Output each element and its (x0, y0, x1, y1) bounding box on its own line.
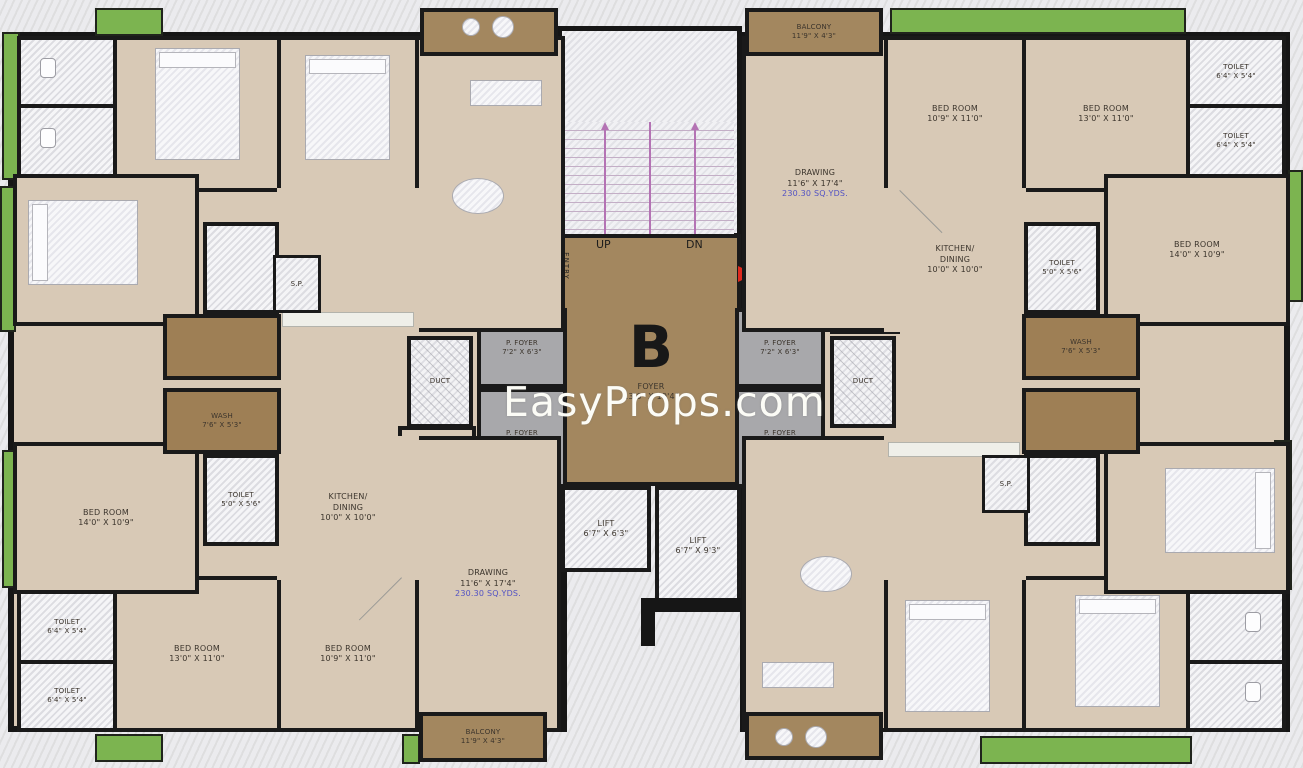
toilet-02c (1024, 454, 1100, 546)
balcony-04 (420, 8, 558, 56)
bedroom-03b: BED ROOM 13'0" X 11'0" (113, 576, 281, 732)
room-label: TOILET (1049, 259, 1075, 268)
room-label: TOILET (54, 687, 80, 696)
room-label: BED ROOM (83, 508, 129, 518)
wash-01: WASH 7'6" X 5'3" (1022, 314, 1140, 380)
room-dims: 11'6" X 17'4" (460, 579, 515, 589)
room-label: TOILET (228, 491, 254, 500)
room-dims: 10'0" X 10'0" (320, 513, 375, 523)
stair-dn-arrow-icon (691, 122, 699, 130)
kitchen-counter (282, 312, 414, 327)
toilet-04c (203, 222, 279, 314)
pillow-icon (32, 204, 48, 281)
watermark: EasyProps.com (503, 378, 826, 426)
floor-plan-b-wing: B FOYER 13'6" X 19'4" UP DN LIFT 6'7" X … (0, 0, 1303, 768)
room-label: TOILET (1223, 132, 1249, 141)
room-dims: 5'0" X 5'6" (221, 500, 261, 509)
foyer-b: B FOYER 13'6" X 19'4" (561, 234, 741, 486)
balcony-01: BALCONY 11'9" X 4'3" (745, 8, 883, 56)
pillow-icon (1079, 599, 1156, 614)
sp-shaft-02: S.P. (982, 455, 1030, 513)
room-dims: 6'4" X 5'4" (47, 696, 87, 705)
pfoyer-label: P. FOYER (764, 339, 796, 348)
lift-left: LIFT 6'7" X 6'3" (561, 486, 651, 572)
dining-table-icon (800, 556, 852, 592)
wc-icon (1245, 682, 1261, 702)
room-label: BED ROOM (932, 104, 978, 114)
room-dims: 14'0" X 10'9" (78, 518, 133, 528)
stair-dn-line (694, 130, 696, 234)
room-dims: 6'4" X 5'4" (1216, 141, 1256, 150)
wash-04 (163, 314, 281, 380)
room-label: BED ROOM (1083, 104, 1129, 114)
stair-divider (649, 122, 651, 234)
room-label: TOILET (1223, 63, 1249, 72)
room-dims: 10'9" X 11'0" (927, 114, 982, 124)
pfoyer-label: P. FOYER (506, 339, 538, 348)
room-label: BALCONY (797, 23, 832, 32)
room-label: WASH (211, 412, 233, 421)
pfoyer-dims: 7'2" X 6'3" (502, 348, 542, 357)
balcony-table-icon (462, 18, 480, 36)
toilet-01b: TOILET 6'4" X 5'4" (1186, 104, 1286, 178)
room-area: 230.30 SQ.YDS. (782, 189, 848, 199)
sp-label: S.P. (291, 280, 304, 288)
balcony-chair-icon (805, 726, 827, 748)
bedroom-01a: BED ROOM 10'9" X 11'0" (884, 36, 1026, 192)
wc-icon (40, 58, 56, 78)
pillow-icon (1255, 472, 1271, 549)
toilet-01c: TOILET 5'0" X 5'6" (1024, 222, 1100, 314)
wash-03: WASH 7'6" X 5'3" (163, 388, 281, 454)
toilet-02a (1186, 660, 1286, 732)
lift-label: LIFT (598, 519, 615, 529)
sofa-icon (762, 662, 834, 688)
room-dims: 10'0" X 10'0" (927, 265, 982, 275)
kitchen-01: KITCHEN/ DINING 10'0" X 10'0" (884, 188, 1026, 332)
room-label: DRAWING (468, 568, 508, 578)
room-dims: 5'0" X 5'6" (1042, 268, 1082, 277)
balcony-03: BALCONY 11'9" X 4'3" (419, 712, 547, 762)
stair-up-label: UP (596, 238, 611, 251)
room-label: BALCONY (466, 728, 501, 737)
pillow-icon (309, 59, 386, 74)
planter-strip (402, 734, 420, 764)
room-dims: 7'6" X 5'3" (202, 421, 242, 430)
planter-strip (1288, 170, 1303, 302)
sp-shaft-04: S.P. (273, 255, 321, 313)
balcony-chair-icon (492, 16, 514, 38)
planter-strip (95, 734, 163, 762)
toilet-03c: TOILET 5'0" X 5'6" (203, 454, 279, 546)
room-label: KITCHEN/ (329, 492, 368, 502)
dining-table-icon (452, 178, 504, 214)
room-label: TOILET (54, 618, 80, 627)
room-dims: 11'9" X 4'3" (461, 737, 505, 746)
bedroom-01b: BED ROOM 13'0" X 11'0" (1022, 36, 1190, 192)
stair-up-line (604, 130, 606, 234)
room-dims: 13'0" X 11'0" (169, 654, 224, 664)
bedroom-01c: BED ROOM 14'0" X 10'9" (1104, 174, 1290, 326)
lift-label: LIFT (690, 536, 707, 546)
room-label: DINING (333, 503, 363, 513)
room-label: WASH (1070, 338, 1092, 347)
room-dims: 13'0" X 11'0" (1078, 114, 1133, 124)
room-label: BED ROOM (1174, 240, 1220, 250)
toilet-02b (1186, 590, 1286, 664)
planter-strip (890, 8, 1186, 34)
lift-right: LIFT 6'7" X 9'3" (655, 486, 741, 606)
pillow-icon (159, 52, 236, 68)
duct-label: DUCT (853, 377, 873, 386)
room-dims: 11'6" X 17'4" (787, 179, 842, 189)
lift-dims: 6'7" X 9'3" (676, 546, 721, 556)
stair-dn-label: DN (686, 238, 703, 251)
wc-icon (40, 128, 56, 148)
sofa-icon (470, 80, 542, 106)
core-wall (641, 598, 655, 646)
room-dims: 10'9" X 11'0" (320, 654, 375, 664)
duct-right: DUCT (830, 336, 896, 428)
sp-label: S.P. (1000, 480, 1013, 488)
planter-strip (95, 8, 163, 36)
wing-letter: B (629, 318, 673, 376)
bedroom-03c: BED ROOM 14'0" X 10'9" (13, 442, 199, 594)
drawing-room-03: DRAWING 11'6" X 17'4" 230.30 SQ.YDS. (415, 436, 561, 732)
toilet-03a: TOILET 6'4" X 5'4" (17, 660, 117, 732)
room-dims: 6'4" X 5'4" (1216, 72, 1256, 81)
room-dims: 7'6" X 5'3" (1061, 347, 1101, 356)
kitchen-03: KITCHEN/ DINING 10'0" X 10'0" (277, 436, 419, 580)
bedroom-03a: BED ROOM 10'9" X 11'0" (277, 576, 419, 732)
pfoyer-dims: 7'2" X 6'3" (760, 348, 800, 357)
room-label: KITCHEN/ (936, 244, 975, 254)
room-dims: 6'4" X 5'4" (47, 627, 87, 636)
wash-02 (1022, 388, 1140, 454)
room-label: BED ROOM (174, 644, 220, 654)
toilet-04b (17, 104, 117, 178)
room-label: DINING (940, 255, 970, 265)
room-dims: 11'9" X 4'3" (792, 32, 836, 41)
planter-strip (980, 736, 1192, 764)
room-label: BED ROOM (325, 644, 371, 654)
toilet-03b: TOILET 6'4" X 5'4" (17, 590, 117, 664)
drawing-room-01: DRAWING 11'6" X 17'4" 230.30 SQ.YDS. (742, 36, 888, 332)
toilet-01a: TOILET 6'4" X 5'4" (1186, 36, 1286, 108)
core-wall (641, 598, 744, 612)
room-area: 230.30 SQ.YDS. (455, 589, 521, 599)
pillow-icon (909, 604, 986, 620)
duct-left: DUCT (407, 336, 473, 428)
duct-label: DUCT (430, 377, 450, 386)
lift-dims: 6'7" X 6'3" (584, 529, 629, 539)
room-dims: 14'0" X 10'9" (1169, 250, 1224, 260)
room-label: DRAWING (795, 168, 835, 178)
toilet-04a (17, 36, 117, 108)
wc-icon (1245, 612, 1261, 632)
balcony-table-icon (775, 728, 793, 746)
stair-up-arrow-icon (601, 122, 609, 130)
